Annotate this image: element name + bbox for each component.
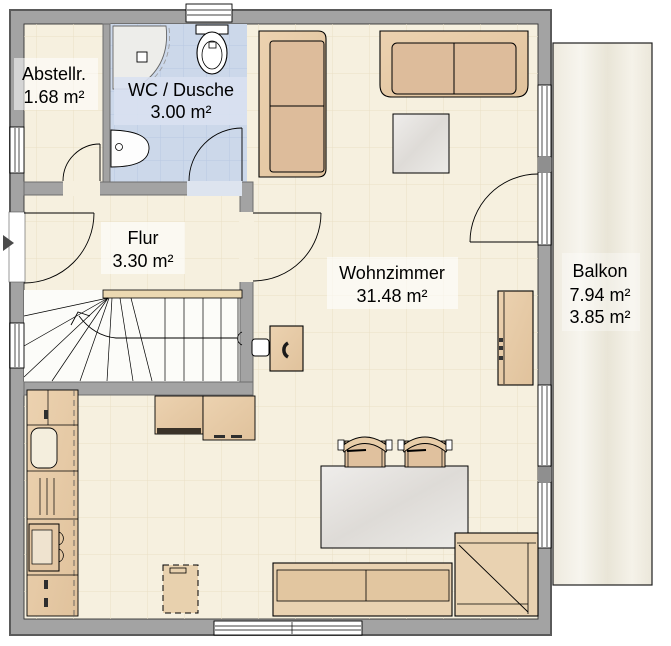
label-abstellraum: Abstellr. 1.68 m² bbox=[14, 58, 98, 110]
balcony: Balkon 7.94 m² 3.85 m² bbox=[553, 43, 652, 585]
wall-pier-east-2 bbox=[538, 467, 551, 482]
window-wohnzimmer-east-2 bbox=[538, 385, 551, 466]
wc-name: WC / Dusche bbox=[128, 80, 234, 100]
floor-plan-page: Balkon 7.94 m² 3.85 m² bbox=[0, 0, 671, 646]
wc-door-opening bbox=[187, 181, 242, 196]
window-abstell-west bbox=[10, 127, 24, 173]
stove bbox=[29, 524, 63, 571]
planned-appliance bbox=[163, 565, 198, 613]
stair-rail bbox=[103, 290, 242, 298]
window-wohnzimmer-east-1 bbox=[538, 85, 551, 157]
sofa-left bbox=[259, 31, 326, 177]
cabinet-handle-rail bbox=[157, 428, 201, 434]
dining-chair-1 bbox=[338, 437, 392, 467]
sofa-top bbox=[380, 31, 528, 97]
bench-long bbox=[273, 563, 452, 616]
floor-plan-drawing: Balkon 7.94 m² 3.85 m² bbox=[0, 0, 671, 646]
balcony-area-secondary: 3.85 m² bbox=[569, 307, 630, 327]
bench-corner bbox=[455, 533, 538, 616]
desk bbox=[270, 326, 303, 371]
stair-floor bbox=[24, 290, 240, 382]
abstellraum-name: Abstellr. bbox=[22, 64, 86, 84]
window-wc-north bbox=[186, 4, 232, 22]
window-wohnzimmer-east-3 bbox=[538, 482, 551, 548]
kitchen-upper-cabinets bbox=[155, 396, 255, 440]
balcony-door-frame bbox=[538, 172, 551, 245]
wohnzimmer-name: Wohnzimmer bbox=[339, 263, 445, 283]
tall-cabinet bbox=[498, 291, 533, 385]
kitchen-counter bbox=[27, 390, 78, 616]
dining-chair-2 bbox=[398, 437, 452, 467]
balcony-label: Balkon bbox=[572, 261, 627, 281]
toilet bbox=[196, 25, 228, 74]
wall-abstell-wc bbox=[103, 24, 110, 182]
wc-area: 3.00 m² bbox=[150, 102, 211, 122]
flur-name: Flur bbox=[128, 228, 159, 248]
label-flur: Flur 3.30 m² bbox=[101, 222, 185, 274]
shower-drain-icon bbox=[137, 52, 147, 62]
flur-door-opening bbox=[239, 212, 254, 282]
label-wc-dusche: WC / Dusche 3.00 m² bbox=[114, 77, 247, 125]
window-south bbox=[214, 621, 362, 635]
desk-chair bbox=[252, 339, 269, 356]
label-wohnzimmer: Wohnzimmer 31.48 m² bbox=[327, 257, 458, 309]
wohnzimmer-area: 31.48 m² bbox=[356, 286, 427, 306]
flur-area: 3.30 m² bbox=[112, 251, 173, 271]
wall-pier-east-1 bbox=[538, 157, 551, 172]
entry-door-opening bbox=[9, 212, 25, 282]
window-stairs-west bbox=[10, 323, 24, 368]
abstell-door-opening bbox=[63, 181, 100, 196]
coffee-table bbox=[393, 114, 449, 173]
dining-table bbox=[321, 466, 468, 548]
abstellraum-area: 1.68 m² bbox=[23, 87, 84, 107]
balcony-area: 7.94 m² bbox=[569, 285, 630, 305]
